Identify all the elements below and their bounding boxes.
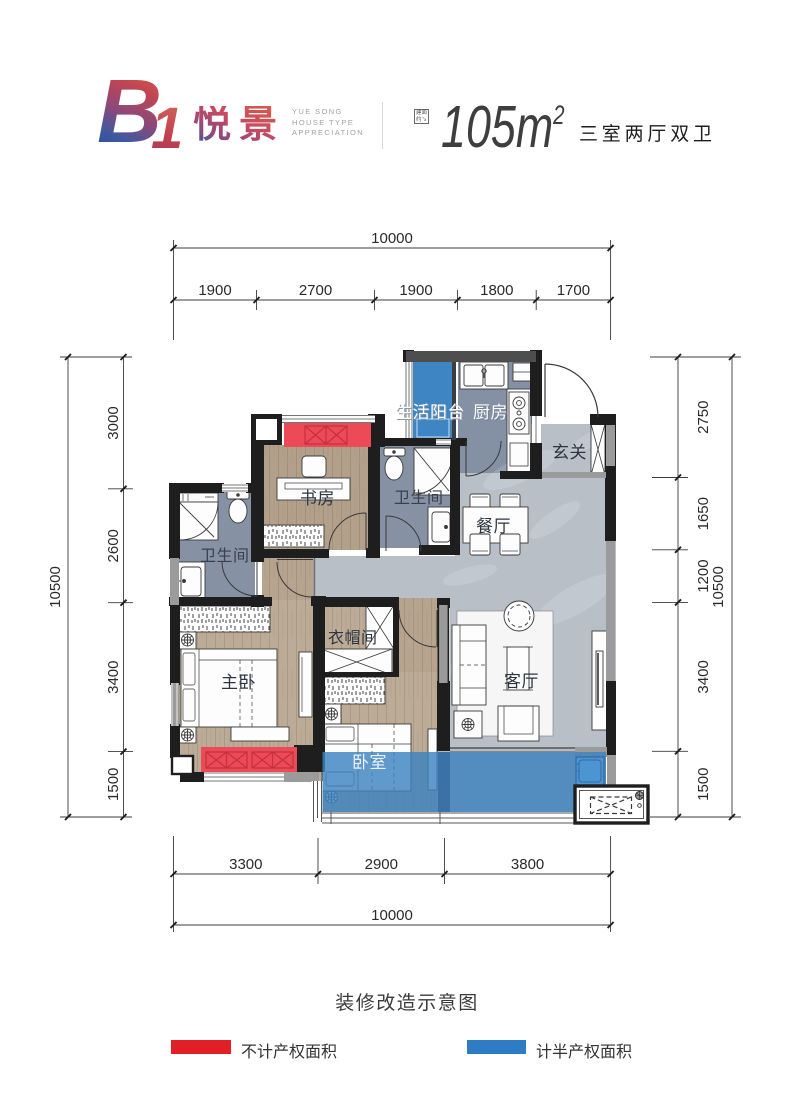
svg-text:1700: 1700 [557,282,590,299]
svg-text:主卧: 主卧 [221,673,256,692]
svg-text:10000: 10000 [371,907,413,924]
svg-text:1500: 1500 [105,768,122,801]
svg-text:卫生间: 卫生间 [394,489,444,507]
svg-text:10500: 10500 [710,566,727,608]
svg-text:客厅: 客厅 [504,672,539,691]
svg-text:衣帽间: 衣帽间 [328,629,378,647]
svg-text:1800: 1800 [480,282,513,299]
svg-text:餐厅: 餐厅 [476,517,511,536]
svg-text:卫生间: 卫生间 [200,547,250,565]
svg-text:1900: 1900 [399,282,432,299]
svg-text:1900: 1900 [198,282,231,299]
svg-text:10000: 10000 [371,230,413,247]
svg-text:10500: 10500 [47,566,64,608]
svg-text:2700: 2700 [299,282,332,299]
svg-text:3400: 3400 [105,661,122,694]
svg-text:3000: 3000 [105,406,122,439]
svg-text:厨房: 厨房 [473,403,508,422]
svg-text:3300: 3300 [229,856,262,873]
svg-text:卧室: 卧室 [352,753,387,772]
svg-text:生活阳台: 生活阳台 [395,403,465,422]
svg-text:2750: 2750 [695,401,712,434]
svg-text:玄关: 玄关 [552,443,587,462]
svg-text:3400: 3400 [695,660,712,693]
svg-text:3800: 3800 [511,856,544,873]
svg-text:2900: 2900 [365,856,398,873]
svg-text:1500: 1500 [695,768,712,801]
svg-text:1650: 1650 [695,497,712,530]
svg-text:2600: 2600 [105,529,122,562]
svg-text:书房: 书房 [300,489,335,508]
